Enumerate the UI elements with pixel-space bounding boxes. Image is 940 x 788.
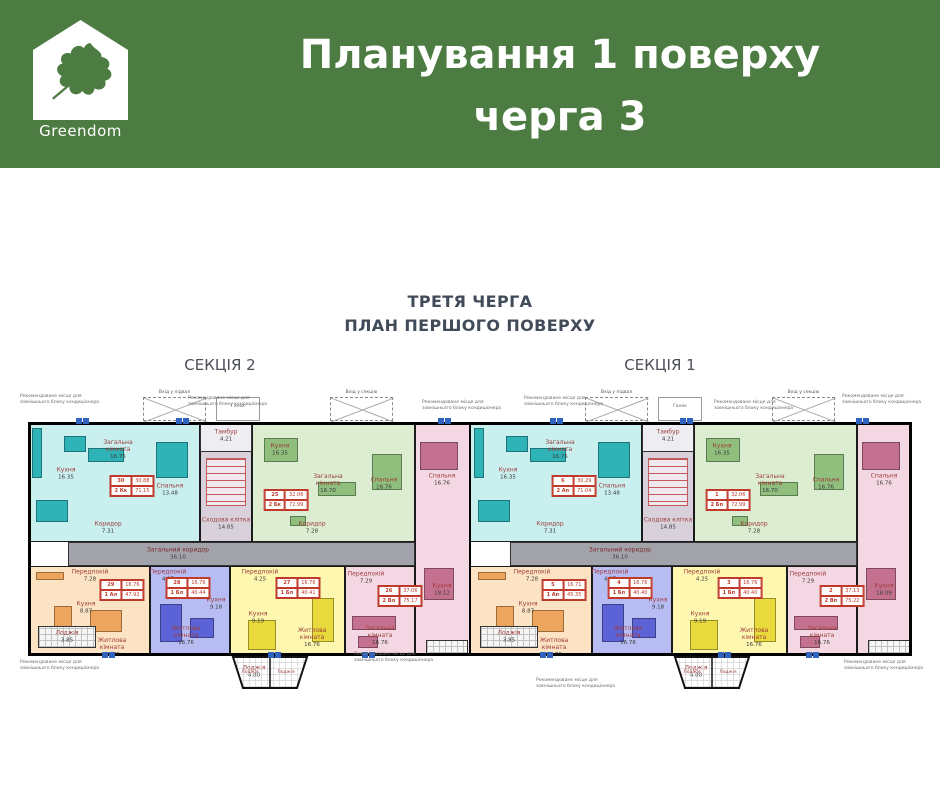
page-title-line1: Планування 1 поверху bbox=[190, 24, 930, 86]
furniture bbox=[690, 620, 718, 650]
building-section-1: Загальний коридор36.10Тамбур4.21Сходова … bbox=[470, 422, 912, 656]
badge-cell: 2 Вл bbox=[378, 596, 399, 606]
badge-cell: 40.40 bbox=[629, 588, 651, 598]
furniture bbox=[312, 598, 334, 642]
badge-cell: 2 Ап bbox=[553, 486, 574, 496]
furniture bbox=[598, 442, 630, 478]
loggia-label: Лоджія bbox=[241, 670, 258, 675]
loggia-label: Лоджія bbox=[719, 670, 736, 675]
ac-note: Рекомендоване місце для зовнішнього блок… bbox=[20, 660, 100, 671]
furniture bbox=[474, 428, 484, 478]
badge-cell: 2 Бк bbox=[265, 500, 285, 510]
furniture bbox=[420, 442, 458, 470]
furniture bbox=[264, 438, 298, 462]
badge-cell: 2 Кк bbox=[110, 486, 131, 496]
ac-note: Рекомендоване місце для зовнішнього блок… bbox=[842, 394, 922, 405]
furniture bbox=[506, 436, 528, 452]
apartment-badge: 2916.761 Ал47.92 bbox=[99, 579, 144, 601]
badge-cell: 71.15 bbox=[131, 486, 153, 496]
badge-cell: 72.99 bbox=[285, 500, 307, 510]
ac-unit-icon bbox=[102, 652, 115, 658]
badge-cell: 40.44 bbox=[187, 588, 209, 598]
apartment-badge: 2716.761 Бл40.41 bbox=[275, 577, 320, 599]
badge-cell: 16.71 bbox=[563, 580, 585, 590]
ac-unit-half bbox=[687, 418, 693, 424]
ac-note: Рекомендоване місце для зовнішнього блок… bbox=[422, 400, 502, 411]
section-1-label: СЕКЦІЯ 1 bbox=[605, 356, 715, 374]
furniture bbox=[358, 636, 378, 648]
loggia-label: Лоджія bbox=[277, 670, 294, 675]
ac-unit-half bbox=[813, 652, 819, 658]
apartment-area bbox=[787, 566, 857, 656]
ac-unit-half bbox=[557, 418, 563, 424]
badge-cell: 2 Вп bbox=[821, 596, 842, 606]
ac-unit-half bbox=[438, 418, 444, 424]
furniture bbox=[706, 438, 740, 462]
stair-flight bbox=[648, 458, 688, 506]
badge-cell: 5 bbox=[543, 580, 564, 590]
loggia-grid bbox=[868, 640, 910, 654]
loggia-grid bbox=[38, 626, 96, 648]
apartment-badge: 2816.761 Бл40.44 bbox=[165, 577, 210, 599]
bay-loggia bbox=[667, 656, 757, 692]
shared-corridor bbox=[68, 542, 415, 566]
ac-unit-half bbox=[550, 418, 556, 424]
plan-title-line1: ТРЕТЯ ЧЕРГА bbox=[0, 290, 940, 314]
page-title: Планування 1 поверху черга 3 bbox=[190, 24, 930, 148]
ac-unit-icon bbox=[718, 652, 731, 658]
ac-unit-icon bbox=[550, 418, 563, 424]
logo-wordmark: Greendom bbox=[33, 122, 128, 140]
furniture bbox=[424, 568, 454, 600]
furniture bbox=[372, 454, 402, 490]
badge-cell: 1 Бл bbox=[276, 588, 297, 598]
badge-cell: 45.35 bbox=[563, 590, 585, 600]
furniture bbox=[32, 428, 42, 478]
shared-corridor bbox=[510, 542, 857, 566]
greendom-logo: Greendom bbox=[33, 20, 128, 142]
furniture bbox=[160, 604, 182, 642]
furniture bbox=[732, 516, 748, 526]
apartment-badge: 630.292 Ап71.04 bbox=[552, 475, 597, 497]
ac-note: Рекомендоване місце для зовнішнього блок… bbox=[354, 652, 434, 663]
furniture bbox=[760, 482, 798, 496]
bay-loggia-icon bbox=[667, 656, 757, 692]
badge-cell: 37.13 bbox=[841, 586, 863, 596]
entrance-label: Вхід у секцію bbox=[346, 390, 378, 395]
badge-cell: 40.41 bbox=[297, 588, 319, 598]
furniture bbox=[794, 616, 838, 630]
badge-cell: 32.06 bbox=[727, 490, 749, 500]
ac-unit-half bbox=[176, 418, 182, 424]
plan-title: ТРЕТЯ ЧЕРГА ПЛАН ПЕРШОГО ПОВЕРХУ bbox=[0, 290, 940, 338]
badge-cell: 3 bbox=[719, 578, 740, 588]
tambour bbox=[200, 422, 252, 452]
oak-leaf-icon bbox=[43, 36, 119, 116]
badge-cell: 28 bbox=[166, 578, 187, 588]
ac-unit-half bbox=[183, 418, 189, 424]
badge-cell: 26 bbox=[378, 586, 399, 596]
entrance-canopy bbox=[330, 397, 393, 421]
furniture bbox=[248, 620, 276, 650]
badge-cell: 2 Бп bbox=[707, 500, 728, 510]
apartment-badge: 516.711 Ап45.35 bbox=[542, 579, 587, 601]
ac-unit-half bbox=[718, 652, 724, 658]
ac-unit-icon bbox=[438, 418, 451, 424]
furniture bbox=[754, 598, 776, 642]
header-banner: Greendom Планування 1 поверху черга 3 bbox=[0, 0, 940, 168]
ac-unit-half bbox=[806, 652, 812, 658]
canopy-x-icon bbox=[331, 398, 394, 422]
badge-cell: 75.17 bbox=[399, 596, 421, 606]
building-section-2: Загальний коридор36.10Тамбур4.21Сходова … bbox=[28, 422, 470, 656]
apartment-badge: 237.132 Вп75.22 bbox=[820, 585, 865, 607]
ac-unit-icon bbox=[76, 418, 89, 424]
apartment-badge: 3030.882 Кк71.15 bbox=[109, 475, 154, 497]
furniture bbox=[36, 572, 64, 580]
ac-unit-half bbox=[725, 652, 731, 658]
furniture bbox=[290, 516, 306, 526]
ac-unit-half bbox=[540, 652, 546, 658]
furniture bbox=[64, 436, 86, 452]
badge-cell: 40.40 bbox=[739, 588, 761, 598]
furniture bbox=[156, 442, 188, 478]
entrance-label: Вхід у підвал bbox=[159, 390, 190, 395]
ac-unit-half bbox=[83, 418, 89, 424]
ac-unit-icon bbox=[806, 652, 819, 658]
page: { "header": { "logo_text": "Greendom", "… bbox=[0, 0, 940, 788]
ac-unit-half bbox=[863, 418, 869, 424]
badge-cell: 16.76 bbox=[121, 580, 143, 590]
apartment-badge: 416.761 Бп40.40 bbox=[608, 577, 653, 599]
furniture bbox=[814, 454, 844, 490]
ac-unit-half bbox=[109, 652, 115, 658]
badge-cell: 1 bbox=[707, 490, 728, 500]
badge-cell: 16.76 bbox=[187, 578, 209, 588]
ac-note: Рекомендоване місце для зовнішнього блок… bbox=[524, 396, 604, 407]
ac-note: Рекомендоване місце для зовнішнього блок… bbox=[188, 396, 268, 407]
ac-unit-icon bbox=[856, 418, 869, 424]
loggia-grid bbox=[480, 626, 538, 648]
furniture bbox=[352, 616, 396, 630]
ac-unit-half bbox=[102, 652, 108, 658]
ac-unit-icon bbox=[268, 652, 281, 658]
furniture bbox=[800, 636, 820, 648]
ac-note: Рекомендоване місце для зовнішнього блок… bbox=[536, 678, 616, 689]
ac-note: Рекомендоване місце для зовнішнього блок… bbox=[714, 400, 794, 411]
badge-cell: 30.29 bbox=[573, 476, 595, 486]
ac-note: Рекомендоване місце для зовнішнього блок… bbox=[844, 660, 924, 671]
furniture bbox=[318, 482, 356, 496]
furniture bbox=[478, 500, 510, 522]
badge-cell: 71.04 bbox=[573, 486, 595, 496]
badge-cell: 75.22 bbox=[841, 596, 863, 606]
plan-title-line2: ПЛАН ПЕРШОГО ПОВЕРХУ bbox=[0, 314, 940, 338]
badge-cell: 16.76 bbox=[629, 578, 651, 588]
apartment-badge: 316.761 Бп40.40 bbox=[718, 577, 763, 599]
ac-unit-half bbox=[275, 652, 281, 658]
furniture bbox=[632, 618, 656, 638]
apartment-area bbox=[345, 566, 415, 656]
ac-unit-icon bbox=[680, 418, 693, 424]
floorplan: Загальний коридор36.10Тамбур4.21Сходова … bbox=[18, 394, 922, 734]
badge-cell: 1 Ап bbox=[543, 590, 564, 600]
badge-cell: 16.76 bbox=[739, 578, 761, 588]
badge-cell: 72.99 bbox=[727, 500, 749, 510]
entrance-label: Вхід у секцію bbox=[788, 390, 820, 395]
apartment-badge: 132.062 Бп72.99 bbox=[706, 489, 751, 511]
apartment-badge: 2532.062 Бк72.99 bbox=[264, 489, 309, 511]
apartment-badge: 2637.062 Вл75.17 bbox=[377, 585, 422, 607]
furniture bbox=[862, 442, 900, 470]
ac-unit-half bbox=[680, 418, 686, 424]
furniture bbox=[530, 448, 566, 462]
furniture bbox=[88, 448, 124, 462]
ac-unit-half bbox=[445, 418, 451, 424]
section-divider bbox=[469, 422, 471, 656]
badge-cell: 6 bbox=[553, 476, 574, 486]
badge-cell: 16.76 bbox=[297, 578, 319, 588]
ac-unit-half bbox=[547, 652, 553, 658]
ac-unit-half bbox=[268, 652, 274, 658]
ac-unit-half bbox=[76, 418, 82, 424]
badge-cell: 1 Бп bbox=[609, 588, 630, 598]
ac-unit-icon bbox=[540, 652, 553, 658]
furniture bbox=[36, 500, 68, 522]
furniture bbox=[602, 604, 624, 642]
loggia-label: Лоджія bbox=[683, 670, 700, 675]
badge-cell: 32.06 bbox=[285, 490, 307, 500]
section-2-label: СЕКЦІЯ 2 bbox=[165, 356, 275, 374]
badge-cell: 1 Бл bbox=[166, 588, 187, 598]
badge-cell: 1 Бп bbox=[719, 588, 740, 598]
bay-loggia bbox=[225, 656, 315, 692]
badge-cell: 2 bbox=[821, 586, 842, 596]
badge-cell: 4 bbox=[609, 578, 630, 588]
stair-flight bbox=[206, 458, 246, 506]
badge-cell: 1 Ал bbox=[100, 590, 121, 600]
entrance-label: Вхід у підвал bbox=[601, 390, 632, 395]
badge-cell: 37.06 bbox=[399, 586, 421, 596]
tambour bbox=[642, 422, 694, 452]
ac-note: Рекомендоване місце для зовнішнього блок… bbox=[20, 394, 100, 405]
page-title-line2: черга 3 bbox=[190, 86, 930, 148]
furniture bbox=[190, 618, 214, 638]
badge-cell: 25 bbox=[265, 490, 285, 500]
badge-cell: 47.92 bbox=[121, 590, 143, 600]
porch-label: Ганок bbox=[673, 404, 687, 409]
bay-loggia-icon bbox=[225, 656, 315, 692]
badge-cell: 29 bbox=[100, 580, 121, 590]
badge-cell: 27 bbox=[276, 578, 297, 588]
furniture bbox=[866, 568, 896, 600]
ac-unit-half bbox=[856, 418, 862, 424]
ac-unit-icon bbox=[176, 418, 189, 424]
badge-cell: 30.88 bbox=[131, 476, 153, 486]
furniture bbox=[478, 572, 506, 580]
badge-cell: 30 bbox=[110, 476, 131, 486]
